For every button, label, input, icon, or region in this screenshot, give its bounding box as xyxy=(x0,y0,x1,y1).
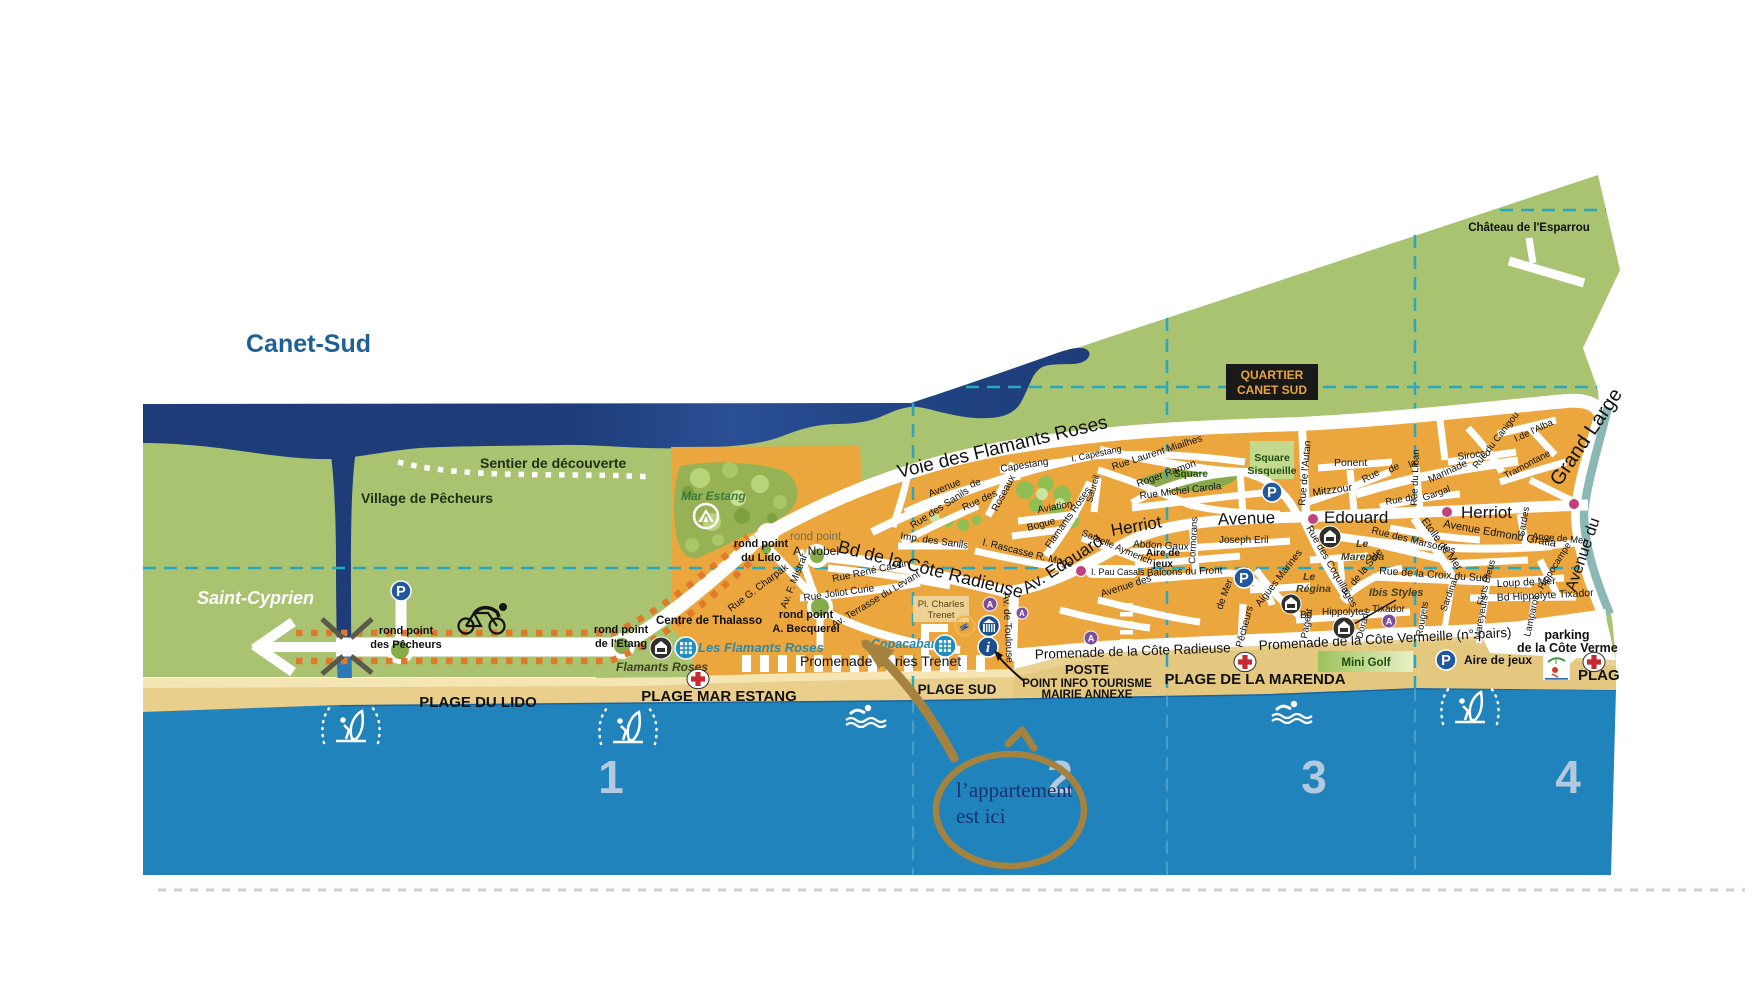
svg-text:rond point: rond point xyxy=(779,609,834,621)
svg-text:rond point: rond point xyxy=(734,538,789,550)
svg-text:Avenue: Avenue xyxy=(1217,508,1275,529)
svg-text:Herriot: Herriot xyxy=(1461,503,1512,522)
svg-text:Trenet: Trenet xyxy=(927,610,954,621)
svg-text:A. Becquerel: A. Becquerel xyxy=(772,623,839,635)
svg-text:PLAGE SUD: PLAGE SUD xyxy=(918,682,997,697)
svg-text:Mini Golf: Mini Golf xyxy=(1341,657,1390,669)
svg-text:Edouard: Edouard xyxy=(1324,508,1388,527)
svg-text:Le: Le xyxy=(1356,538,1368,550)
svg-text:CANET SUD: CANET SUD xyxy=(1237,383,1307,397)
svg-text:Mar Estang: Mar Estang xyxy=(681,489,746,503)
svg-text:POSTE: POSTE xyxy=(1065,662,1109,677)
svg-text:P: P xyxy=(396,584,406,600)
svg-text:Canet-Sud: Canet-Sud xyxy=(246,330,371,358)
svg-text:de l'Etang: de l'Etang xyxy=(595,638,647,650)
svg-text:MAIRIE ANNEXE: MAIRIE ANNEXE xyxy=(1042,689,1133,701)
svg-text:A: A xyxy=(1019,609,1025,618)
svg-text:Saint-Cyprien: Saint-Cyprien xyxy=(197,588,314,608)
svg-text:parking: parking xyxy=(1544,628,1589,642)
svg-text:A: A xyxy=(1386,617,1393,627)
svg-text:A: A xyxy=(987,600,994,610)
svg-text:Le: Le xyxy=(1303,571,1315,583)
svg-text:3: 3 xyxy=(1301,751,1327,803)
svg-text:PLAGE MAR ESTANG: PLAGE MAR ESTANG xyxy=(641,688,797,705)
svg-text:A: A xyxy=(1088,634,1095,644)
svg-text:Tixador: Tixador xyxy=(1372,604,1406,615)
svg-text:Château de l'Esparrou: Château de l'Esparrou xyxy=(1468,222,1590,234)
svg-text:rond point: rond point xyxy=(379,625,434,637)
svg-text:Pl. Charles: Pl. Charles xyxy=(918,599,965,610)
svg-text:Hippolyte: Hippolyte xyxy=(1322,607,1364,618)
svg-text:PLAGE DE LA MARENDA: PLAGE DE LA MARENDA xyxy=(1164,671,1345,688)
svg-text:QUARTIER: QUARTIER xyxy=(1241,368,1304,382)
svg-text:des Pêcheurs: des Pêcheurs xyxy=(370,639,442,651)
svg-text:rond point: rond point xyxy=(790,531,842,543)
svg-text:Aire de jeux: Aire de jeux xyxy=(1464,653,1532,667)
svg-text:4: 4 xyxy=(1555,751,1581,803)
svg-text:Centre de Thalasso: Centre de Thalasso xyxy=(656,615,762,627)
svg-text:du Lido: du Lido xyxy=(741,552,781,564)
svg-text:Sentier de découverte: Sentier de découverte xyxy=(480,455,626,471)
svg-text:rond point: rond point xyxy=(594,624,649,636)
svg-text:Joseph Eril: Joseph Eril xyxy=(1219,535,1268,546)
svg-text:Sisqueille: Sisqueille xyxy=(1247,465,1296,477)
svg-text:Square: Square xyxy=(1254,452,1290,464)
svg-text:PLAGE DU LIDO: PLAGE DU LIDO xyxy=(419,694,537,711)
svg-text:Les Flamants Roses: Les Flamants Roses xyxy=(698,640,824,655)
svg-text:I. Pau Casals: I. Pau Casals xyxy=(1091,567,1145,577)
svg-text:P: P xyxy=(1267,485,1277,501)
svg-text:1: 1 xyxy=(598,751,624,803)
svg-text:Ibis Styles: Ibis Styles xyxy=(1369,587,1423,599)
svg-text:Régina: Régina xyxy=(1296,583,1331,595)
svg-text:l’appartement: l’appartement xyxy=(956,778,1073,802)
svg-text:Ponent: Ponent xyxy=(1334,457,1367,469)
svg-text:P: P xyxy=(1441,653,1451,669)
svg-text:P: P xyxy=(1239,571,1249,587)
svg-text:est ici: est ici xyxy=(956,804,1006,828)
svg-text:Village de Pêcheurs: Village de Pêcheurs xyxy=(361,490,493,506)
